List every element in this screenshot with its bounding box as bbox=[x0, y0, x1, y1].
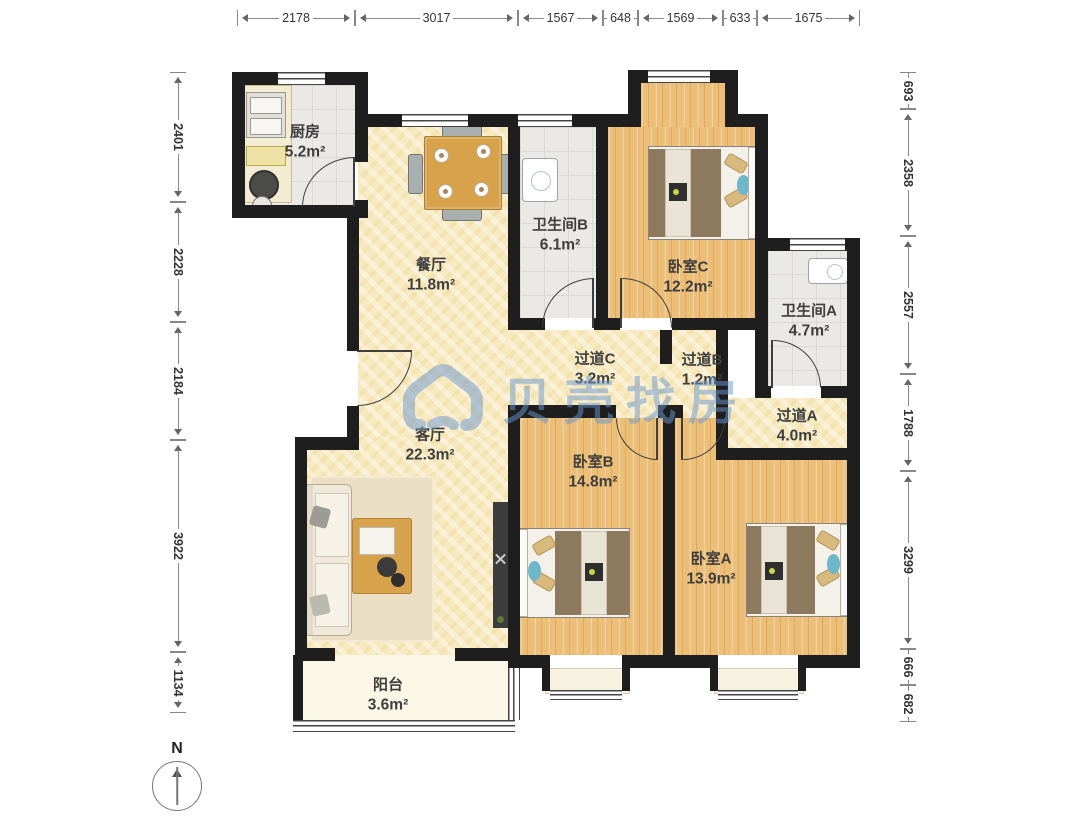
wall bbox=[232, 72, 245, 218]
dimension-top: 3017 bbox=[355, 10, 518, 26]
wall bbox=[347, 218, 359, 351]
dimension-left: 2184 bbox=[170, 322, 186, 440]
dimension-right: 1788 bbox=[900, 374, 916, 471]
dimension-top: 2178 bbox=[237, 10, 355, 26]
dimension-top: 633 bbox=[723, 10, 757, 26]
wall bbox=[728, 448, 847, 460]
wall bbox=[755, 114, 768, 398]
dimension-right: 2358 bbox=[900, 109, 916, 236]
wall bbox=[596, 127, 608, 330]
window bbox=[648, 70, 710, 83]
wall bbox=[675, 405, 683, 418]
north-indicator: N bbox=[152, 740, 202, 811]
room-label-hallway-c: 过道C3.2m² bbox=[575, 351, 616, 390]
window bbox=[278, 72, 325, 85]
dimension-top: 1675 bbox=[757, 10, 860, 26]
wall bbox=[594, 318, 608, 330]
room-label-bathroom-a: 卫生间A4.7m² bbox=[781, 303, 837, 342]
wall bbox=[293, 655, 303, 722]
dining-table bbox=[424, 136, 502, 210]
room-label-dining: 餐厅11.8m² bbox=[407, 257, 455, 296]
plate bbox=[434, 148, 449, 163]
wall bbox=[672, 318, 768, 330]
window bbox=[550, 690, 622, 700]
coffee-table bbox=[352, 518, 412, 594]
dining-chair bbox=[408, 154, 423, 194]
wall bbox=[663, 405, 675, 668]
wall bbox=[755, 238, 790, 251]
wall bbox=[508, 405, 520, 668]
tv-cabinet bbox=[493, 502, 508, 628]
wall bbox=[847, 238, 860, 668]
wall bbox=[508, 127, 520, 330]
sink-basin bbox=[250, 118, 282, 135]
window bbox=[402, 114, 468, 127]
wall bbox=[628, 655, 718, 668]
dimension-right: 3299 bbox=[900, 471, 916, 649]
dimension-right: 682 bbox=[900, 685, 916, 722]
sink-basin bbox=[250, 97, 282, 114]
room-label-bedroom-a: 卧室A13.9m² bbox=[686, 551, 735, 590]
wall bbox=[295, 648, 335, 661]
dimension-right: 2557 bbox=[900, 236, 916, 374]
window bbox=[508, 668, 520, 720]
wall bbox=[355, 200, 368, 218]
dimension-top: 1567 bbox=[518, 10, 603, 26]
dimension-top: 648 bbox=[603, 10, 638, 26]
room-label-bedroom-b: 卧室B14.8m² bbox=[568, 454, 617, 493]
window bbox=[293, 720, 515, 732]
sofa bbox=[302, 484, 352, 636]
plate bbox=[476, 144, 491, 159]
window bbox=[718, 690, 798, 700]
wall bbox=[355, 114, 402, 127]
dimension-left: 1134 bbox=[170, 652, 186, 713]
room-label-bedroom-c: 卧室C12.2m² bbox=[663, 259, 712, 298]
room-label-living: 客厅22.3m² bbox=[405, 427, 454, 466]
north-label: N bbox=[171, 740, 183, 758]
dimension-left: 2401 bbox=[170, 72, 186, 202]
window bbox=[518, 114, 572, 127]
wall bbox=[468, 114, 518, 127]
kitchen-utensil-box bbox=[246, 146, 286, 166]
dimension-right: 666 bbox=[900, 649, 916, 685]
washing-machine bbox=[808, 258, 848, 284]
bed-bedroom-c bbox=[648, 146, 758, 240]
wall bbox=[755, 386, 771, 398]
wall bbox=[508, 405, 616, 418]
compass-circle bbox=[152, 761, 202, 811]
wall bbox=[803, 655, 860, 668]
wall bbox=[628, 70, 641, 127]
window bbox=[790, 238, 845, 251]
dimension-right: 693 bbox=[900, 72, 916, 109]
wall bbox=[542, 655, 550, 691]
room-label-kitchen: 厨房5.2m² bbox=[285, 124, 326, 163]
dimension-left: 2228 bbox=[170, 202, 186, 322]
wall bbox=[710, 655, 718, 691]
wall bbox=[798, 655, 806, 691]
wall bbox=[622, 655, 630, 691]
floorplan-canvas: 厨房5.2m² 餐厅11.8m² 卫生间B6.1m² 卧室C12.2m² 卫生间… bbox=[0, 0, 1082, 822]
plate bbox=[438, 184, 453, 199]
room-label-hallway-b: 过道B1.2m² bbox=[682, 352, 723, 391]
wall bbox=[608, 318, 620, 330]
wall bbox=[660, 330, 672, 364]
bed-bedroom-a bbox=[746, 523, 850, 617]
wall bbox=[508, 318, 545, 330]
washing-machine bbox=[522, 158, 558, 202]
bedroom-c-floor-upper bbox=[641, 83, 725, 127]
room-label-hallway-a: 过道A4.0m² bbox=[777, 408, 818, 447]
bed-bedroom-b bbox=[518, 528, 630, 618]
dimension-top: 1569 bbox=[638, 10, 723, 26]
room-label-balcony: 阳台3.6m² bbox=[368, 677, 409, 716]
wall bbox=[821, 386, 847, 398]
wall bbox=[295, 437, 307, 655]
plate bbox=[474, 182, 489, 197]
room-label-bathroom-b: 卫生间B6.1m² bbox=[532, 217, 588, 256]
dimension-left: 3922 bbox=[170, 440, 186, 652]
plant-icon bbox=[497, 616, 504, 623]
